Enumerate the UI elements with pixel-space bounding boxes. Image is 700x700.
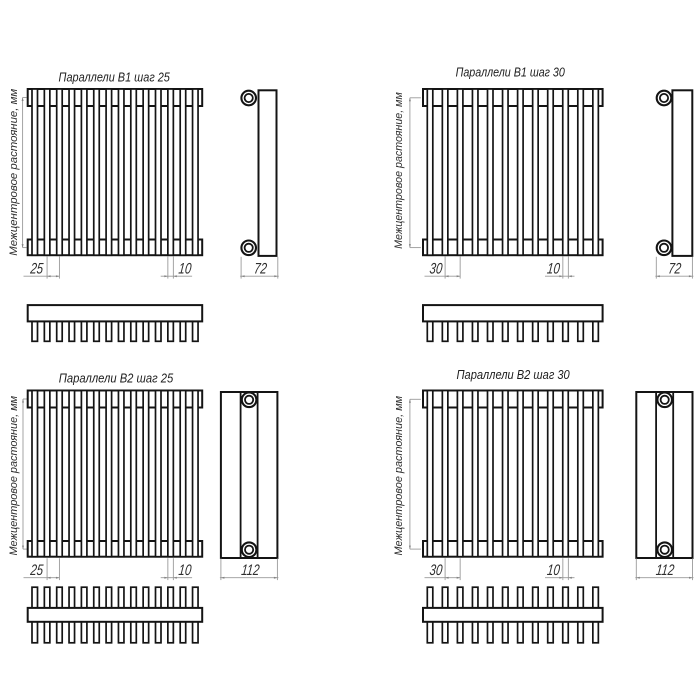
svg-text:Параллели В1 шаг 30: Параллели В1 шаг 30 bbox=[456, 64, 566, 79]
svg-text:112: 112 bbox=[240, 561, 260, 578]
svg-text:25: 25 bbox=[29, 561, 45, 578]
svg-text:Параллели В2 шаг 30: Параллели В2 шаг 30 bbox=[456, 367, 569, 382]
svg-text:30: 30 bbox=[429, 561, 444, 578]
svg-text:Параллели В2 шаг 25: Параллели В2 шаг 25 bbox=[59, 370, 174, 385]
svg-text:Межцентровое растояние, мм: Межцентровое растояние, мм bbox=[393, 395, 405, 555]
svg-text:Межцентровое растояние, мм: Межцентровое растояние, мм bbox=[393, 91, 405, 248]
svg-text:10: 10 bbox=[178, 260, 193, 277]
svg-text:Параллели В1 шаг 25: Параллели В1 шаг 25 bbox=[59, 69, 171, 84]
svg-text:10: 10 bbox=[546, 561, 561, 578]
svg-text:10: 10 bbox=[546, 260, 561, 277]
svg-text:72: 72 bbox=[668, 260, 683, 277]
svg-text:Межцентровое растояние, мм: Межцентровое растояние, мм bbox=[8, 89, 20, 256]
svg-text:25: 25 bbox=[29, 260, 45, 277]
svg-text:112: 112 bbox=[655, 561, 675, 578]
svg-text:10: 10 bbox=[178, 561, 193, 578]
svg-text:Межцентровое растояние, мм: Межцентровое растояние, мм bbox=[8, 395, 20, 555]
svg-text:30: 30 bbox=[429, 260, 444, 277]
svg-text:72: 72 bbox=[253, 260, 268, 277]
